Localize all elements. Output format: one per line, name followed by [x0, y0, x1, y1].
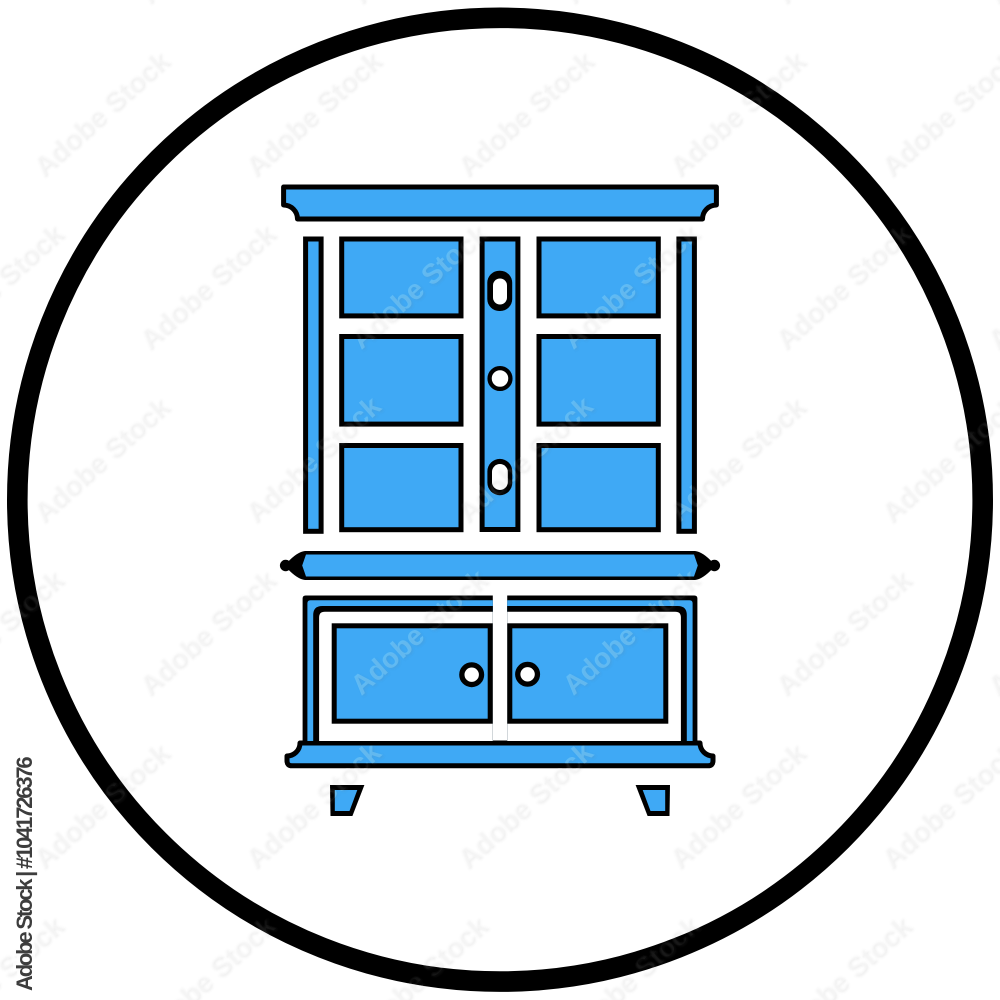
- svg-text:Adobe Stock: Adobe Stock: [875, 44, 1000, 182]
- svg-text:Adobe Stock: Adobe Stock: [769, 217, 917, 355]
- svg-text:Adobe Stock: Adobe Stock: [981, 0, 1000, 9]
- svg-text:Adobe Stock: Adobe Stock: [875, 736, 1000, 874]
- svg-text:Adobe Stock: Adobe Stock: [981, 217, 1000, 355]
- svg-text:Adobe Stock: Adobe Stock: [27, 390, 175, 528]
- svg-text:Adobe Stock: Adobe Stock: [981, 909, 1000, 1000]
- svg-text:Adobe Stock: Adobe Stock: [0, 0, 71, 10]
- svg-text:Adobe Stock: Adobe Stock: [0, 0, 69, 9]
- svg-text:Adobe Stock: Adobe Stock: [982, 910, 1000, 1000]
- svg-text:Adobe Stock | #1041726376: Adobe Stock | #1041726376: [12, 757, 37, 991]
- svg-text:Adobe Stock: Adobe Stock: [769, 563, 917, 701]
- svg-text:Adobe Stock: Adobe Stock: [451, 44, 599, 182]
- svg-text:Adobe Stock: Adobe Stock: [133, 563, 281, 701]
- svg-text:Adobe Stock: Adobe Stock: [133, 217, 281, 355]
